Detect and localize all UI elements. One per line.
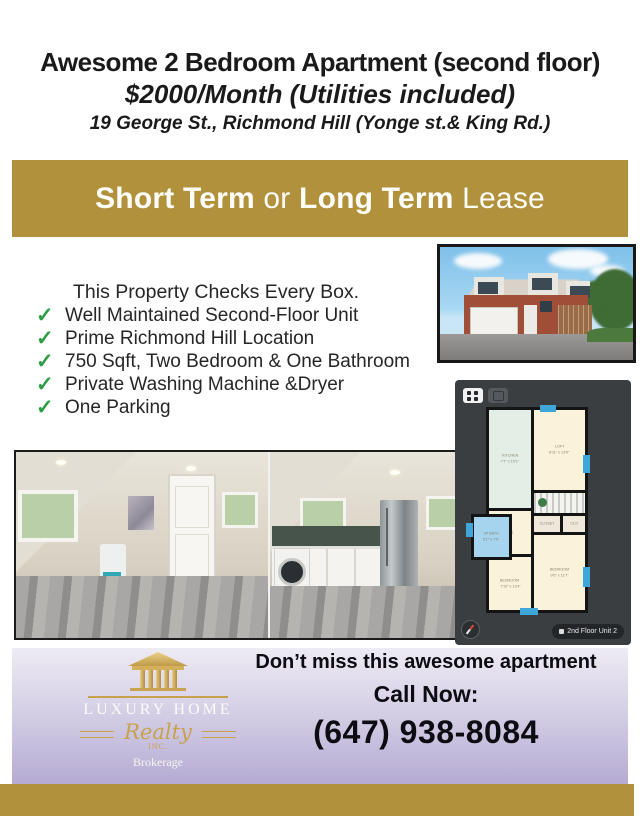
window <box>426 496 458 530</box>
room-loft: LOFT 8'11" x 13'9" <box>534 410 585 490</box>
logo-script-text: Realty <box>124 720 192 744</box>
living-room-photo <box>16 452 270 638</box>
short-term-label: Short Term <box>95 182 255 215</box>
list-item-label: Private Washing Machine &Dryer <box>65 374 344 396</box>
lease-banner: Short Term or Long Term Lease <box>12 160 628 237</box>
entry-door <box>524 305 537 336</box>
room-dims: 7'10" x 13'4" <box>500 585 520 589</box>
room-dims: 7'7" x 15'1" <box>501 460 519 464</box>
cta-headline: Don’t miss this awesome apartment <box>230 651 622 674</box>
floor-unit-label: 2nd Floor Unit 2 <box>567 628 617 635</box>
wall-art <box>128 496 154 530</box>
room-closet: CLOSET <box>534 516 560 532</box>
grid-view-icon[interactable] <box>463 388 483 403</box>
list-item-label: Prime Richmond Hill Location <box>65 328 314 350</box>
checklist-intro: This Property Checks Every Box. <box>36 281 466 304</box>
room-label: CLOSET <box>540 522 555 526</box>
house-exterior-photo <box>437 244 636 363</box>
window <box>18 490 78 542</box>
phone-number: (647) 938-8084 <box>230 714 622 751</box>
price-line: $2000/Month (Utilities included) <box>0 78 640 111</box>
plank-floor <box>16 576 268 638</box>
logo-flourish <box>80 731 114 738</box>
window-marker <box>583 567 590 587</box>
house-window <box>540 301 552 312</box>
page-title: Awesome 2 Bedroom Apartment (second floo… <box>0 46 640 78</box>
floor-unit-badge[interactable]: 2nd Floor Unit 2 <box>552 624 624 639</box>
door-panel <box>175 486 209 528</box>
backsplash <box>272 526 380 546</box>
pot-light <box>186 466 196 471</box>
list-item: ✓ 750 Sqft, Two Bedroom & One Bathroom <box>36 350 466 373</box>
list-item: ✓ One Parking <box>36 396 466 419</box>
base-shape <box>130 688 186 691</box>
grass-patch <box>587 328 633 342</box>
room-label: LOFT <box>555 445 565 449</box>
list-item: ✓ Prime Richmond Hill Location <box>36 327 466 350</box>
porch-deck <box>558 305 592 335</box>
room-label: CLO <box>570 522 578 526</box>
kitchen-photo <box>270 452 458 638</box>
room-label: 3P BATH <box>484 532 499 536</box>
room-label: KITCHEN <box>502 454 518 458</box>
bottom-gold-strip <box>0 784 634 816</box>
long-term-label: Long Term <box>299 182 454 215</box>
list-item: ✓ Well Maintained Second-Floor Unit <box>36 304 466 327</box>
floorplan-drawing: KITCHEN 7'7" x 15'1" LOFT 8'11" x 13'9" … <box>486 407 588 613</box>
list-item-label: Well Maintained Second-Floor Unit <box>65 305 358 327</box>
interior-photos <box>14 450 460 640</box>
list-item-label: 750 Sqft, Two Bedroom & One Bathroom <box>65 351 410 373</box>
dormer-window <box>528 273 558 295</box>
compass-icon[interactable] <box>461 620 480 639</box>
window-marker <box>466 523 473 537</box>
columns-shape <box>134 670 182 688</box>
unit-icon <box>559 629 564 634</box>
or-label: or <box>255 182 299 215</box>
stairs <box>534 493 585 513</box>
room-label: BEDROOM <box>550 568 569 572</box>
room-dims: 8'11" x 13'9" <box>549 451 569 455</box>
room-dims: 9'6" x 11'7" <box>550 574 568 578</box>
logo-divider <box>88 696 228 698</box>
address-line: 19 George St., Richmond Hill (Yonge st.&… <box>0 111 640 136</box>
pot-light <box>390 470 400 475</box>
cloud-shape <box>454 253 502 269</box>
check-icon: ✓ <box>36 349 58 374</box>
list-item: ✓ Private Washing Machine &Dryer <box>36 373 466 396</box>
room-bedroom-right: BEDROOM 9'6" x 11'7" <box>534 535 585 610</box>
window-marker <box>583 455 590 473</box>
check-icon: ✓ <box>36 303 58 328</box>
logo-name: LUXURY HOME <box>78 701 238 719</box>
window-marker <box>540 405 556 412</box>
stair-marker <box>538 498 547 507</box>
room-clo: CLO <box>563 516 585 532</box>
floorplan-panel: KITCHEN 7'7" x 15'1" LOFT 8'11" x 13'9" … <box>455 380 631 645</box>
logo-brokerage: Brokerage <box>78 755 238 770</box>
lease-banner-text: Short Term or Long Term Lease <box>95 182 545 216</box>
check-icon: ✓ <box>36 372 58 397</box>
lease-label: Lease <box>454 182 545 215</box>
building-icon <box>126 652 190 692</box>
logo-script-name: Realty <box>78 721 238 743</box>
pot-light <box>56 460 66 465</box>
logo-inc: INC. <box>78 743 238 751</box>
list-item-label: One Parking <box>65 397 171 419</box>
plank-floor <box>270 586 458 638</box>
call-to-action: Don’t miss this awesome apartment Call N… <box>230 651 622 751</box>
flyer-header: Awesome 2 Bedroom Apartment (second floo… <box>0 46 640 136</box>
room-bath: 3P BATH 5'1" x 7'0" <box>471 514 512 560</box>
room-dims: 5'1" x 7'0" <box>483 538 499 542</box>
pediment-shape <box>128 652 188 666</box>
room-bedroom-left: BEDROOM 7'10" x 13'4" <box>489 557 531 610</box>
window-marker <box>520 608 538 615</box>
feature-checklist: This Property Checks Every Box. ✓ Well M… <box>36 281 466 419</box>
footer-panel: LUXURY HOME Realty INC. Brokerage Don’t … <box>12 648 628 784</box>
check-icon: ✓ <box>36 395 58 420</box>
fridge <box>380 500 418 596</box>
room-kitchen: KITCHEN 7'7" x 15'1" <box>489 410 531 508</box>
camera-view-icon[interactable] <box>488 388 508 403</box>
check-icon: ✓ <box>36 326 58 351</box>
call-now-label: Call Now: <box>230 681 622 708</box>
room-label: BEDROOM <box>500 579 519 583</box>
brokerage-logo: LUXURY HOME Realty INC. Brokerage <box>78 652 238 770</box>
hallway-window <box>222 492 258 528</box>
